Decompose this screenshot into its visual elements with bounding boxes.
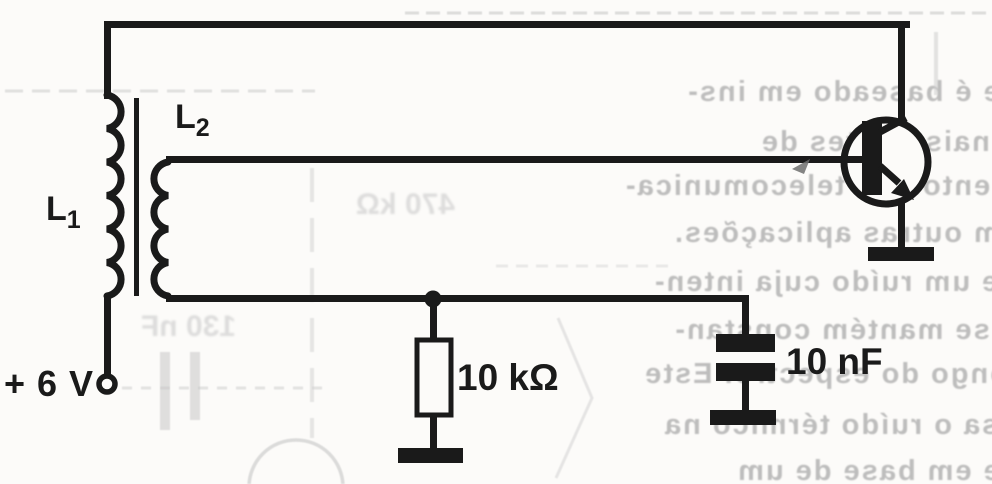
wire-emitter <box>898 202 905 249</box>
transistor-base-bar <box>862 121 882 195</box>
scanned-schematic-page: se é baseado em ins- sinais, testes de m… <box>0 0 992 484</box>
wire-bottom <box>166 295 749 302</box>
label-l1: L1 <box>46 190 81 235</box>
ground-bar-resistor <box>398 448 463 463</box>
wire-top-rail <box>104 21 910 28</box>
transformer-core <box>134 98 139 296</box>
supply-terminal-circle <box>99 376 115 392</box>
resistor-body <box>417 340 451 415</box>
capacitor-plate-bottom <box>716 363 775 381</box>
label-capacitor-value: 10 nF <box>786 341 883 383</box>
capacitor-plate-top <box>716 334 775 352</box>
wire-l1-top-stem <box>104 21 111 99</box>
circuit-schematic <box>0 0 992 484</box>
label-l2-subscript: 2 <box>196 114 210 142</box>
inductor-l1-coil <box>107 95 121 296</box>
label-resistor-value: 10 kΩ <box>457 357 559 399</box>
wire-capacitor-bottom <box>742 380 749 412</box>
label-l1-letter: L <box>46 190 67 228</box>
ground-bar-capacitor <box>710 410 776 425</box>
label-supply-voltage: + 6 V <box>4 363 94 405</box>
junction-dot <box>425 291 442 308</box>
wire-resistor-bottom <box>430 414 437 451</box>
wire-collector <box>898 21 905 125</box>
wire-capacitor-top <box>742 301 749 336</box>
label-l2-letter: L <box>175 98 196 136</box>
wire-base <box>166 156 862 163</box>
wire-l1-bottom-stem <box>104 294 111 375</box>
label-l1-subscript: 1 <box>67 206 81 234</box>
label-l2: L2 <box>175 98 210 143</box>
ground-bar-emitter <box>868 247 934 261</box>
inductor-l2-coil <box>154 162 168 296</box>
